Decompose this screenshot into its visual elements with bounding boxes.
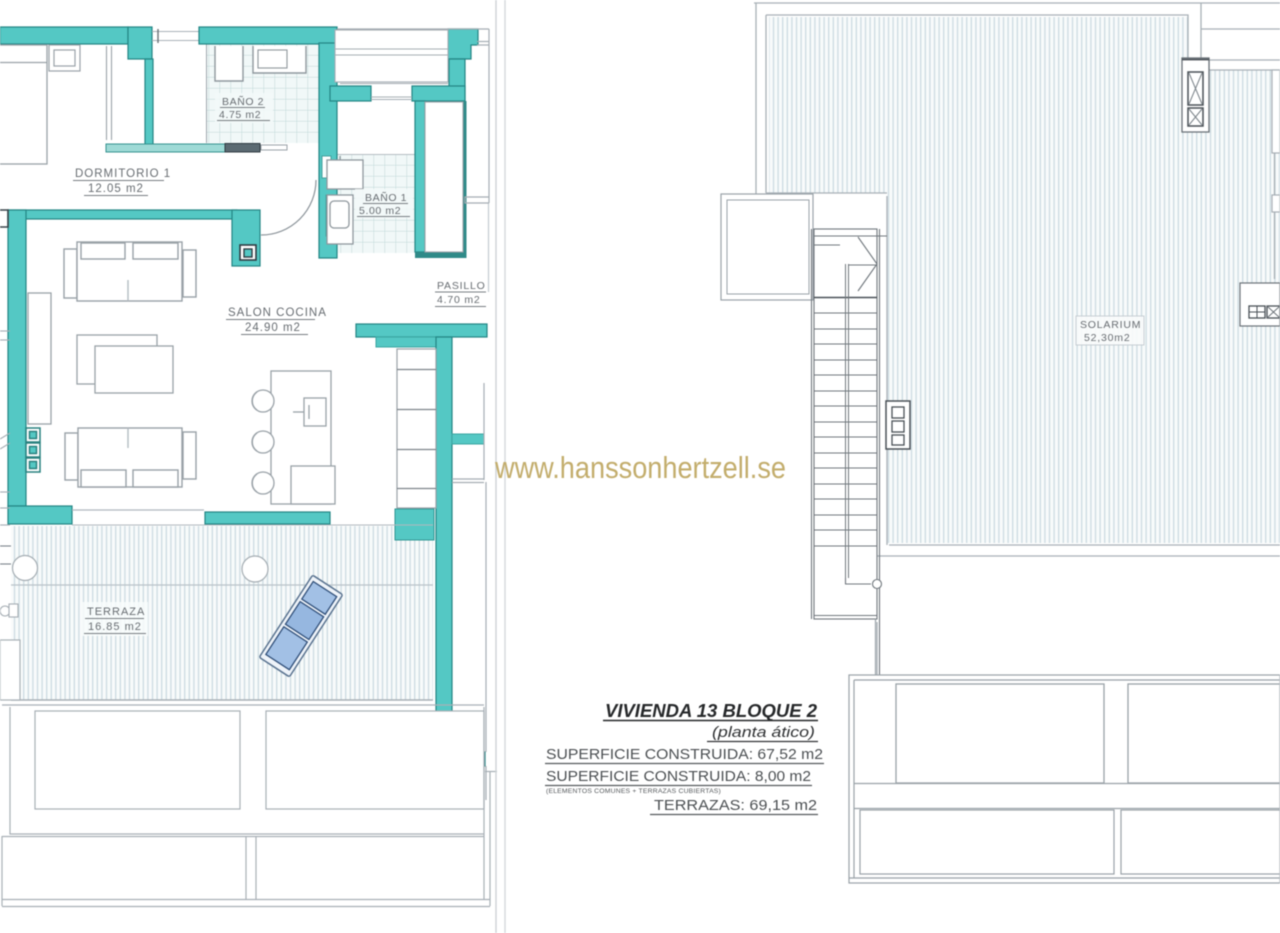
svg-text:DORMITORIO 1: DORMITORIO 1 xyxy=(75,168,171,180)
svg-text:SUPERFICIE CONSTRUIDA: 8,00 m2: SUPERFICIE CONSTRUIDA: 8,00 m2 xyxy=(546,769,811,785)
svg-text:4.70 m2: 4.70 m2 xyxy=(437,294,481,306)
svg-text:BAÑO 2: BAÑO 2 xyxy=(222,95,264,108)
svg-text:VIVIENDA 13 BLOQUE 2: VIVIENDA 13 BLOQUE 2 xyxy=(605,701,817,721)
svg-text:SOLARIUM: SOLARIUM xyxy=(1080,319,1141,331)
svg-text:www.hanssonhertzell.se: www.hanssonhertzell.se xyxy=(494,450,786,485)
svg-text:PASILLO: PASILLO xyxy=(437,280,486,292)
svg-text:16.85 m2: 16.85 m2 xyxy=(88,621,142,633)
svg-text:5.00 m2: 5.00 m2 xyxy=(359,205,401,217)
svg-text:TERRAZA: TERRAZA xyxy=(87,606,145,618)
svg-text:TERRAZAS: 69,15 m2: TERRAZAS: 69,15 m2 xyxy=(654,798,817,814)
svg-text:(planta ático): (planta ático) xyxy=(712,725,815,741)
svg-text:4.75 m2: 4.75 m2 xyxy=(219,109,261,121)
svg-text:SUPERFICIE CONSTRUIDA: 67,52 m: SUPERFICIE CONSTRUIDA: 67,52 m2 xyxy=(546,747,823,763)
svg-text:(ELEMENTOS COMUNES + TERRAZAS: (ELEMENTOS COMUNES + TERRAZAS CUBIERTAS) xyxy=(546,788,721,795)
svg-text:SALON COCINA: SALON COCINA xyxy=(228,307,327,319)
svg-text:12.05 m2: 12.05 m2 xyxy=(88,183,144,195)
svg-text:52,30m2: 52,30m2 xyxy=(1084,332,1130,344)
svg-text:BAÑO 1: BAÑO 1 xyxy=(365,191,407,204)
svg-text:24.90 m2: 24.90 m2 xyxy=(245,322,301,334)
